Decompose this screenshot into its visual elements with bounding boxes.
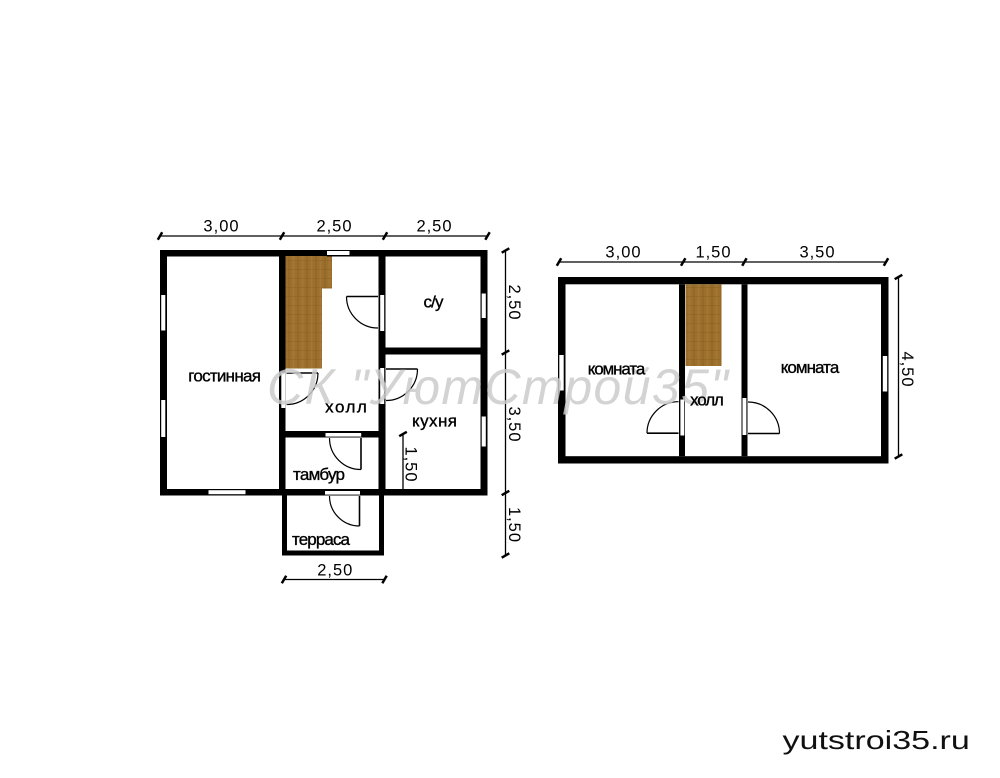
svg-text:3,00: 3,00 xyxy=(605,244,640,262)
svg-text:гостинная: гостинная xyxy=(188,366,261,385)
svg-text:терраса: терраса xyxy=(292,530,351,549)
svg-text:1,50: 1,50 xyxy=(402,447,420,482)
svg-text:4,50: 4,50 xyxy=(898,352,916,387)
svg-text:3,50: 3,50 xyxy=(800,244,835,262)
svg-text:тамбур: тамбур xyxy=(293,465,345,484)
svg-text:1,50: 1,50 xyxy=(696,244,731,262)
svg-text:2,50: 2,50 xyxy=(317,562,352,580)
svg-text:1,50: 1,50 xyxy=(505,507,523,542)
svg-text:3,00: 3,00 xyxy=(203,218,238,236)
svg-text:холл: холл xyxy=(325,398,367,417)
svg-text:комната: комната xyxy=(781,358,840,377)
svg-text:yutstroi35.ru: yutstroi35.ru xyxy=(783,727,970,755)
svg-text:комната: комната xyxy=(588,360,646,379)
svg-text:2,50: 2,50 xyxy=(505,285,523,320)
svg-text:с/у: с/у xyxy=(424,293,445,312)
svg-text:2,50: 2,50 xyxy=(417,218,452,236)
svg-text:кухня: кухня xyxy=(412,412,457,431)
svg-text:2,50: 2,50 xyxy=(317,218,352,236)
svg-text:холл: холл xyxy=(690,391,724,410)
